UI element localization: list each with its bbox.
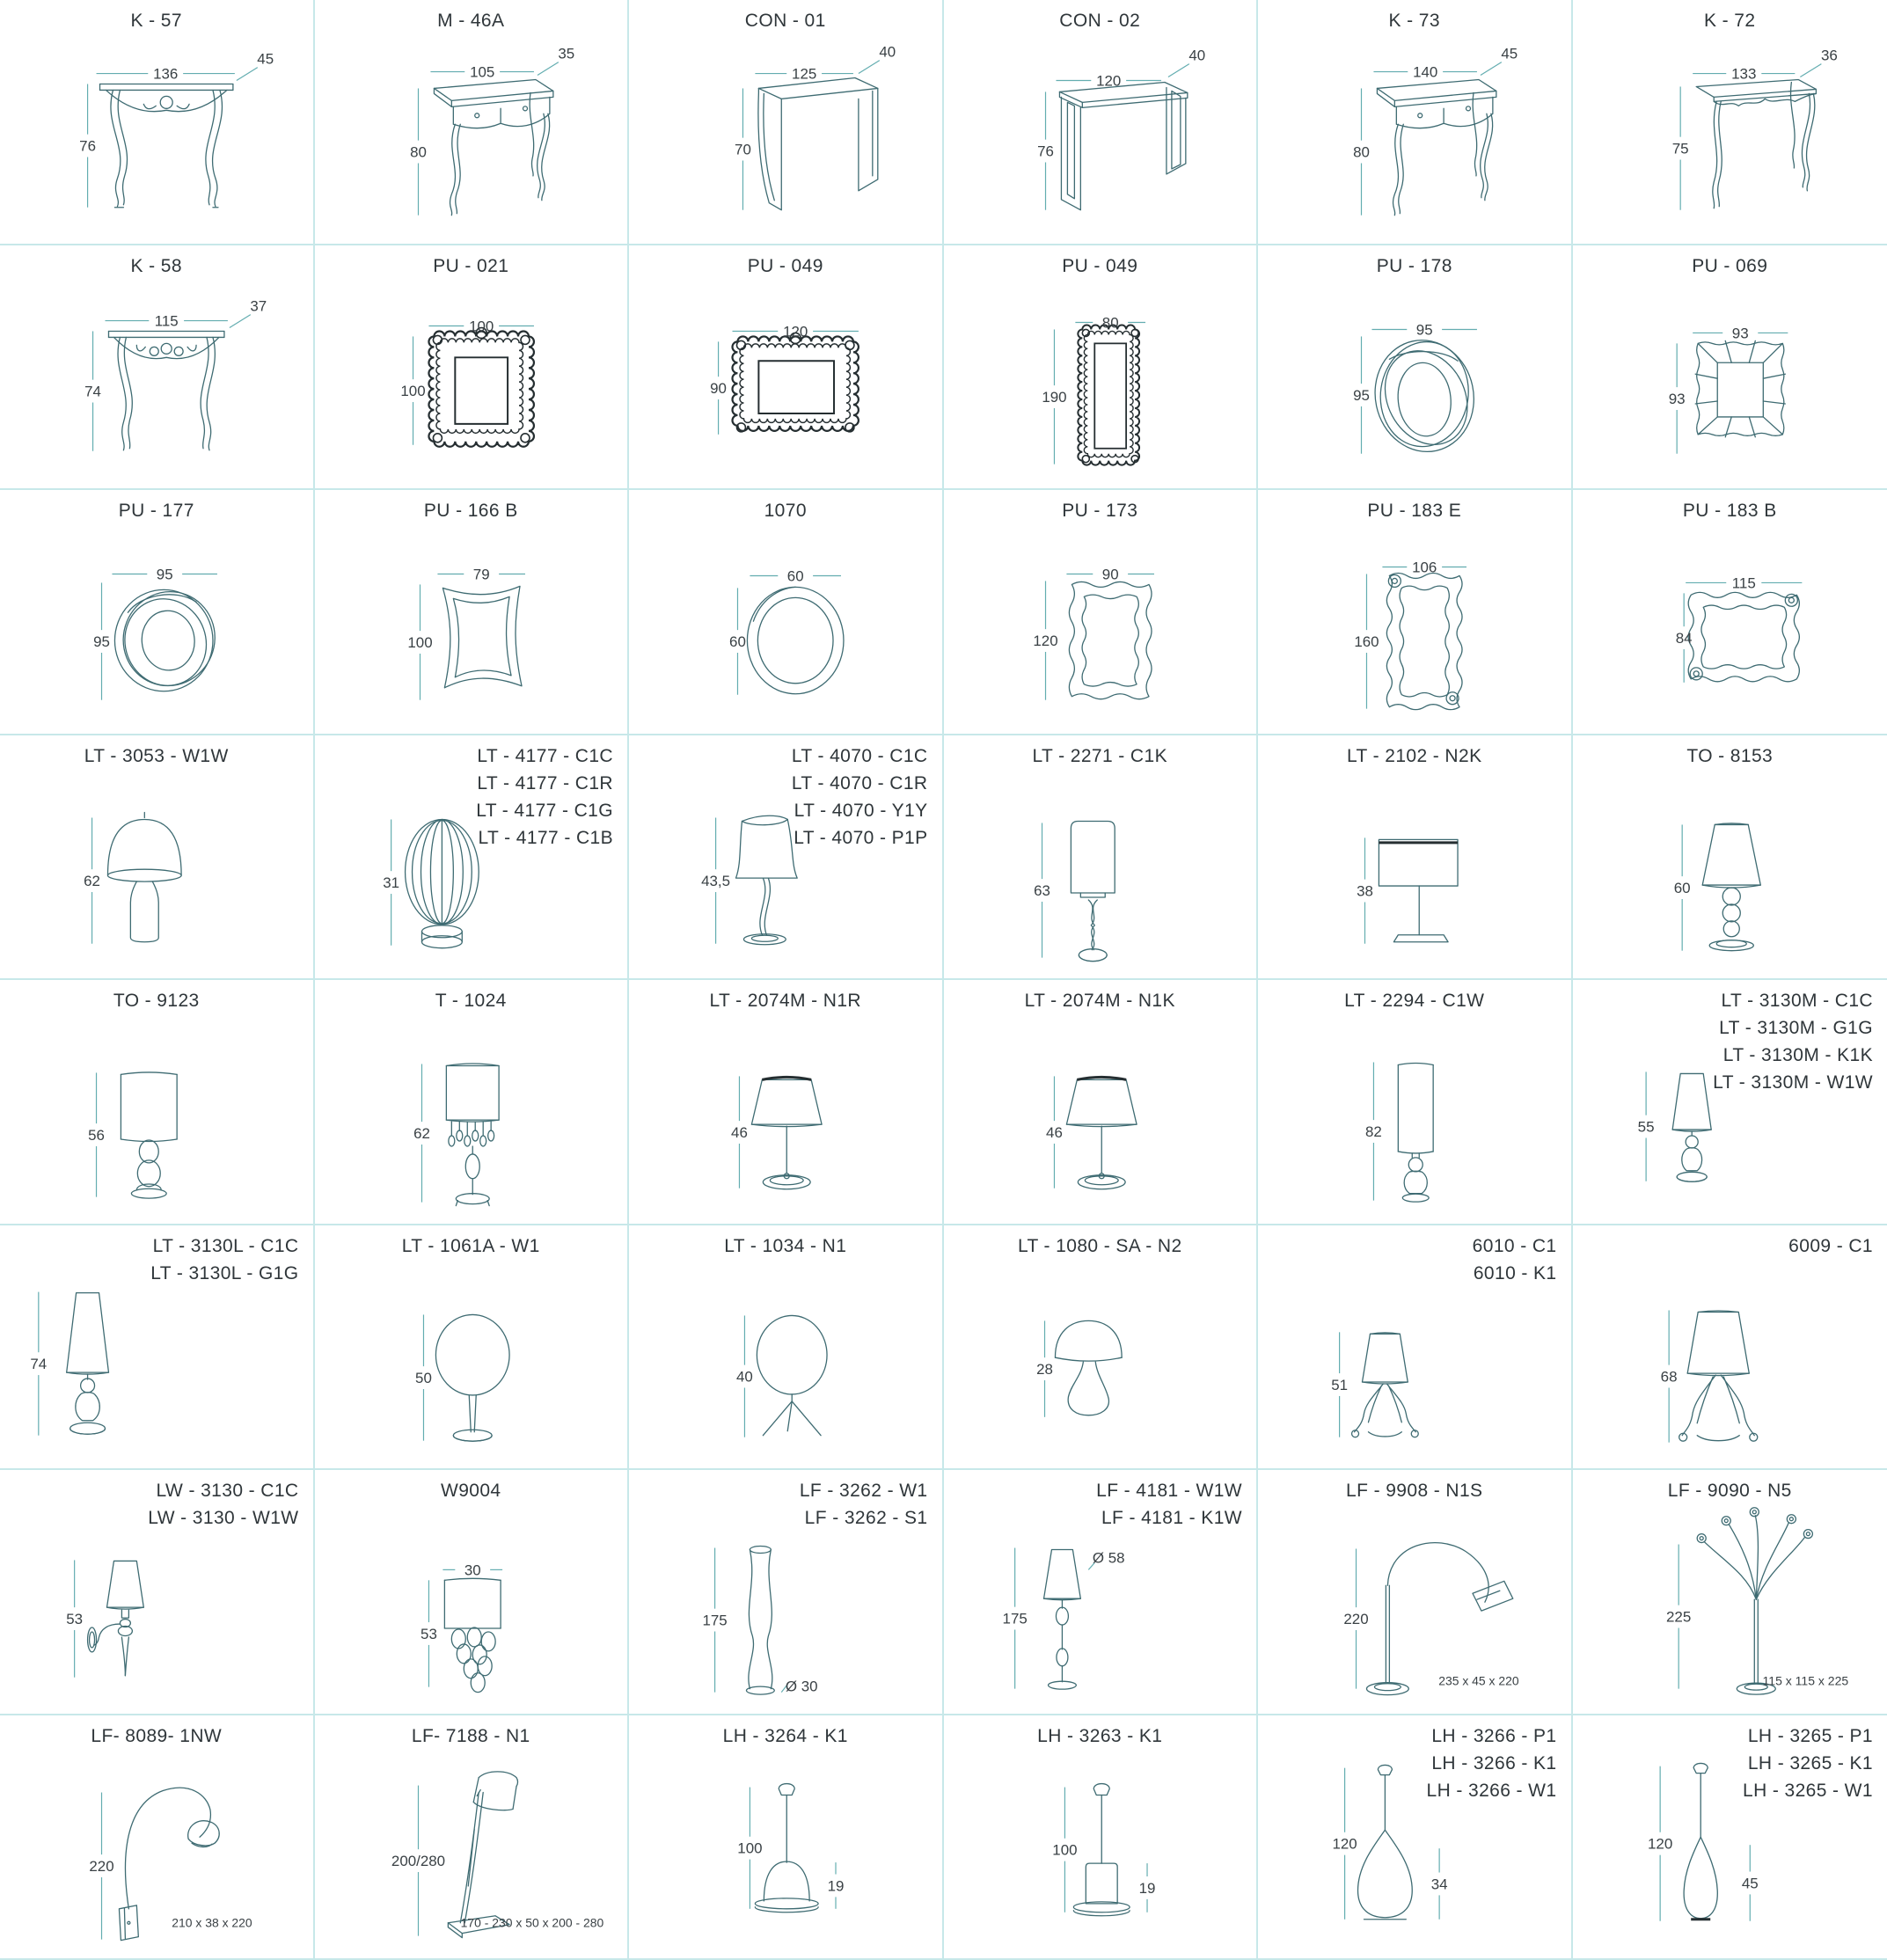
product-cell: LT - 2294 - C1W82	[1258, 980, 1573, 1225]
svg-text:115: 115	[155, 312, 179, 329]
product-codes: T - 1024	[315, 987, 628, 1014]
product-drawing: 225115 x 115 x 225	[1573, 1470, 1887, 1714]
svg-text:93: 93	[1731, 325, 1748, 341]
product-codes: LT - 2074M - N1K	[944, 987, 1257, 1014]
svg-text:75: 75	[1671, 141, 1688, 157]
svg-text:19: 19	[828, 1877, 845, 1894]
product-codes: K - 72	[1573, 7, 1887, 34]
product-codes: K - 73	[1258, 7, 1571, 34]
svg-text:106: 106	[1412, 559, 1437, 576]
product-code: LW - 3130 - C1C	[148, 1477, 298, 1504]
product-drawing: 9595	[0, 490, 313, 734]
svg-text:60: 60	[1673, 880, 1690, 896]
product-codes: LT - 2294 - C1W	[1258, 987, 1571, 1014]
svg-text:45: 45	[1501, 46, 1518, 62]
product-codes: PU - 178	[1258, 252, 1571, 280]
svg-text:53: 53	[66, 1611, 83, 1627]
product-code: PU - 178	[1258, 252, 1571, 280]
product-codes: LT - 1080 - SA - N2	[944, 1232, 1257, 1260]
product-cell: LT - 1034 - N140	[629, 1225, 944, 1471]
product-drawing: 220235 x 45 x 220	[1258, 1470, 1571, 1714]
svg-text:62: 62	[84, 873, 100, 889]
product-cell: LH - 3264 - K110019	[629, 1715, 944, 1960]
product-code: PU - 069	[1573, 252, 1887, 280]
svg-text:90: 90	[710, 380, 727, 397]
product-drawing: 9595	[1258, 245, 1571, 489]
product-drawing: 106160	[1258, 490, 1571, 734]
svg-text:60: 60	[729, 633, 746, 650]
svg-text:115 x 115 x 225: 115 x 115 x 225	[1762, 1674, 1848, 1688]
svg-text:40: 40	[736, 1368, 753, 1385]
product-drawing: 46	[629, 980, 942, 1224]
product-code: T - 1024	[315, 987, 628, 1014]
product-cell: LT - 3053 - W1W62	[0, 735, 315, 981]
svg-text:120: 120	[1332, 1835, 1357, 1852]
svg-text:38: 38	[1357, 882, 1373, 899]
svg-text:36: 36	[1820, 48, 1837, 64]
svg-text:74: 74	[30, 1356, 47, 1372]
product-code: LH - 3266 - K1	[1427, 1750, 1557, 1777]
product-code: LT - 4070 - Y1Y	[792, 797, 928, 824]
svg-text:95: 95	[157, 566, 173, 582]
product-cell: LT - 3130L - C1CLT - 3130L - G1G74	[0, 1225, 315, 1471]
product-cell: LH - 3266 - P1LH - 3266 - K1LH - 3266 - …	[1258, 1715, 1573, 1960]
product-code: LH - 3265 - W1	[1743, 1777, 1873, 1804]
product-code: LT - 4070 - C1R	[792, 770, 928, 797]
product-cell: 10706060	[629, 490, 944, 735]
product-codes: LT - 2074M - N1R	[629, 987, 942, 1014]
product-code: LF- 7188 - N1	[315, 1722, 628, 1750]
product-drawing: 200/280170 - 230 x 50 x 200 - 280	[315, 1715, 628, 1959]
product-code: LF - 4181 - W1W	[1096, 1477, 1242, 1504]
product-drawing: 46	[944, 980, 1257, 1224]
product-drawing: 50	[315, 1225, 628, 1469]
product-code: LT - 3053 - W1W	[0, 742, 313, 770]
product-code: LF- 8089- 1NW	[0, 1722, 313, 1750]
svg-text:115: 115	[1731, 574, 1755, 591]
svg-text:80: 80	[1101, 314, 1118, 331]
product-drawing: 10019	[629, 1715, 942, 1959]
product-codes: 6010 - C16010 - K1	[1473, 1232, 1557, 1287]
product-drawing: 82	[1258, 980, 1571, 1224]
product-cell: PU - 183 E106160	[1258, 490, 1573, 735]
product-drawing: 9393	[1573, 245, 1887, 489]
product-cell: PU - 1779595	[0, 490, 315, 735]
product-code: TO - 8153	[1573, 742, 1887, 770]
svg-text:84: 84	[1675, 630, 1692, 647]
svg-text:55: 55	[1637, 1119, 1654, 1136]
svg-text:79: 79	[472, 566, 489, 582]
product-drawing: 100100	[315, 245, 628, 489]
product-drawing: 1364576	[0, 0, 313, 244]
product-code: CON - 02	[944, 7, 1257, 34]
svg-text:170 - 230 x 50 x 200 - 280: 170 - 230 x 50 x 200 - 280	[460, 1915, 603, 1929]
product-cell: LT - 1061A - W150	[315, 1225, 630, 1471]
product-code: LW - 3130 - W1W	[148, 1504, 298, 1532]
svg-text:100: 100	[400, 383, 425, 399]
product-code: LT - 4177 - C1C	[476, 742, 613, 770]
product-codes: PU - 166 B	[315, 497, 628, 524]
product-cell: PU - 04912090	[629, 245, 944, 491]
product-codes: PU - 021	[315, 252, 628, 280]
svg-text:51: 51	[1331, 1376, 1348, 1393]
product-cell: LW - 3130 - C1CLW - 3130 - W1W53	[0, 1470, 315, 1715]
product-cell: PU - 183 B11584	[1573, 490, 1887, 735]
product-codes: PU - 183 E	[1258, 497, 1571, 524]
product-cell: T - 102462	[315, 980, 630, 1225]
product-code: LT - 3130M - W1W	[1713, 1069, 1873, 1096]
svg-text:46: 46	[1046, 1124, 1063, 1141]
svg-text:30: 30	[464, 1561, 480, 1578]
product-codes: K - 58	[0, 252, 313, 280]
svg-text:56: 56	[88, 1127, 105, 1144]
product-drawing: 60	[1573, 735, 1887, 979]
product-cell: K - 581153774	[0, 245, 315, 491]
product-code: LT - 1061A - W1	[315, 1232, 628, 1260]
product-cell: LF - 3262 - W1LF - 3262 - S1175Ø 30	[629, 1470, 944, 1715]
product-code: PU - 049	[944, 252, 1257, 280]
svg-text:210 x 38 x 220: 210 x 38 x 220	[172, 1915, 252, 1929]
svg-text:45: 45	[1741, 1875, 1758, 1891]
product-code: LT - 2074M - N1R	[629, 987, 942, 1014]
product-codes: LT - 3130M - C1CLT - 3130M - G1GLT - 313…	[1713, 987, 1873, 1096]
product-codes: PU - 049	[629, 252, 942, 280]
product-code: LT - 1034 - N1	[629, 1232, 942, 1260]
svg-text:95: 95	[1353, 387, 1370, 404]
product-code: LT - 4177 - C1G	[476, 797, 613, 824]
product-cell: LH - 3265 - P1LH - 3265 - K1LH - 3265 - …	[1573, 1715, 1887, 1960]
product-codes: LT - 1061A - W1	[315, 1232, 628, 1260]
product-code: TO - 9123	[0, 987, 313, 1014]
svg-text:100: 100	[737, 1839, 762, 1856]
product-code: LT - 3130L - C1C	[150, 1232, 298, 1260]
svg-text:95: 95	[93, 633, 110, 650]
product-cell: 6009 - C168	[1573, 1225, 1887, 1471]
product-drawing: 63	[944, 735, 1257, 979]
product-codes: PU - 173	[944, 497, 1257, 524]
product-cell: PU - 17390120	[944, 490, 1259, 735]
svg-text:120: 120	[1033, 633, 1057, 649]
product-drawing: 80190	[944, 245, 1257, 489]
svg-text:28: 28	[1036, 1361, 1053, 1378]
product-codes: TO - 8153	[1573, 742, 1887, 770]
product-code: PU - 166 B	[315, 497, 628, 524]
product-cell: PU - 04980190	[944, 245, 1259, 491]
product-codes: LT - 4177 - C1CLT - 4177 - C1RLT - 4177 …	[476, 742, 613, 852]
product-drawing: 79100	[315, 490, 628, 734]
svg-text:43,5: 43,5	[701, 873, 730, 889]
product-code: K - 57	[0, 7, 313, 34]
product-code: K - 72	[1573, 7, 1887, 34]
svg-text:34: 34	[1431, 1876, 1448, 1892]
product-cell: LF - 4181 - W1WLF - 4181 - K1W175Ø 58	[944, 1470, 1259, 1715]
product-drawing: 12090	[629, 245, 942, 489]
product-codes: LT - 1034 - N1	[629, 1232, 942, 1260]
product-drawing: 1153774	[0, 245, 313, 489]
product-codes: LF - 4181 - W1WLF - 4181 - K1W	[1096, 1477, 1242, 1532]
product-codes: PU - 183 B	[1573, 497, 1887, 524]
product-code: LT - 2074M - N1K	[944, 987, 1257, 1014]
product-code: LT - 3130M - K1K	[1713, 1042, 1873, 1069]
product-cell: PU - 0699393	[1573, 245, 1887, 491]
product-code: 6010 - K1	[1473, 1260, 1557, 1287]
product-codes: CON - 01	[629, 7, 942, 34]
svg-text:136: 136	[153, 66, 178, 83]
product-code: LF - 9090 - N5	[1573, 1477, 1887, 1504]
svg-text:200/280: 200/280	[391, 1853, 444, 1869]
svg-text:74: 74	[84, 383, 101, 399]
product-cell: LF- 7188 - N1200/280170 - 230 x 50 x 200…	[315, 1715, 630, 1960]
product-codes: PU - 049	[944, 252, 1257, 280]
product-code: LH - 3266 - P1	[1427, 1722, 1557, 1750]
product-cell: PU - 021100100	[315, 245, 630, 491]
svg-text:100: 100	[1052, 1841, 1077, 1858]
svg-text:120: 120	[1096, 72, 1121, 89]
product-drawing: 38	[1258, 735, 1571, 979]
svg-text:220: 220	[1343, 1611, 1368, 1627]
product-code: LF - 3262 - W1	[800, 1477, 928, 1504]
product-cell: TO - 912356	[0, 980, 315, 1225]
product-code: CON - 01	[629, 7, 942, 34]
catalog-board: K - 571364576M - 46A1053580CON - 0112540…	[0, 0, 1887, 1960]
svg-text:31: 31	[383, 874, 399, 891]
product-drawing: 1404580	[1258, 0, 1571, 244]
product-codes: LH - 3264 - K1	[629, 1722, 942, 1750]
product-cell: K - 571364576	[0, 0, 315, 245]
svg-text:235 x 45 x 220: 235 x 45 x 220	[1438, 1674, 1519, 1688]
product-codes: W9004	[315, 1477, 628, 1504]
product-code: LT - 2271 - C1K	[944, 742, 1257, 770]
product-cell: K - 721333675	[1573, 0, 1887, 245]
product-cell: PU - 1789595	[1258, 245, 1573, 491]
product-cell: LT - 4070 - C1CLT - 4070 - C1RLT - 4070 …	[629, 735, 944, 981]
product-codes: K - 57	[0, 7, 313, 34]
product-code: LT - 3130M - C1C	[1713, 987, 1873, 1014]
product-cell: LH - 3263 - K110019	[944, 1715, 1259, 1960]
product-drawing: 62	[315, 980, 628, 1224]
svg-text:190: 190	[1042, 389, 1066, 406]
product-codes: CON - 02	[944, 7, 1257, 34]
product-cell: K - 731404580	[1258, 0, 1573, 245]
product-cell: LF - 9908 - N1S220235 x 45 x 220	[1258, 1470, 1573, 1715]
product-codes: 6009 - C1	[1788, 1232, 1873, 1260]
svg-text:125: 125	[792, 66, 816, 83]
product-code: PU - 177	[0, 497, 313, 524]
product-drawing: 90120	[944, 490, 1257, 734]
product-cell: LT - 2102 - N2K38	[1258, 735, 1573, 981]
product-cell: PU - 166 B79100	[315, 490, 630, 735]
product-code: LF - 9908 - N1S	[1258, 1477, 1571, 1504]
svg-text:105: 105	[470, 64, 494, 81]
svg-text:35: 35	[558, 46, 574, 62]
svg-text:68: 68	[1660, 1368, 1677, 1385]
product-code: LT - 3130L - G1G	[150, 1260, 298, 1287]
svg-text:19: 19	[1138, 1879, 1155, 1896]
product-code: LH - 3265 - P1	[1743, 1722, 1873, 1750]
svg-text:160: 160	[1354, 633, 1379, 650]
product-code: LT - 3130M - G1G	[1713, 1014, 1873, 1042]
product-drawing: 6060	[629, 490, 942, 734]
product-codes: LF - 9090 - N5	[1573, 1477, 1887, 1504]
product-codes: LF - 9908 - N1S	[1258, 1477, 1571, 1504]
product-code: LH - 3264 - K1	[629, 1722, 942, 1750]
svg-text:175: 175	[702, 1613, 727, 1629]
product-code: PU - 183 B	[1573, 497, 1887, 524]
product-code: PU - 021	[315, 252, 628, 280]
svg-text:63: 63	[1034, 882, 1050, 899]
product-code: M - 46A	[315, 7, 628, 34]
svg-text:Ø 58: Ø 58	[1092, 1549, 1124, 1566]
product-code: LF - 3262 - S1	[800, 1504, 928, 1532]
product-drawing: 56	[0, 980, 313, 1224]
product-codes: LH - 3266 - P1LH - 3266 - K1LH - 3266 - …	[1427, 1722, 1557, 1804]
product-codes: LT - 2102 - N2K	[1258, 742, 1571, 770]
product-drawing: 11584	[1573, 490, 1887, 734]
svg-text:60: 60	[787, 567, 804, 584]
svg-text:100: 100	[469, 318, 494, 334]
product-code: LH - 3265 - K1	[1743, 1750, 1873, 1777]
product-code: LF - 4181 - K1W	[1096, 1504, 1242, 1532]
svg-text:80: 80	[410, 144, 427, 161]
product-code: 6010 - C1	[1473, 1232, 1557, 1260]
product-codes: LT - 2271 - C1K	[944, 742, 1257, 770]
svg-text:95: 95	[1416, 321, 1433, 338]
product-code: LT - 4177 - C1B	[476, 824, 613, 852]
product-drawing: 1333675	[1573, 0, 1887, 244]
product-drawing: 1053580	[315, 0, 628, 244]
product-drawing: 1254070	[629, 0, 942, 244]
svg-text:76: 76	[1037, 143, 1054, 160]
product-drawing: 10019	[944, 1715, 1257, 1959]
product-code: 6009 - C1	[1788, 1232, 1873, 1260]
svg-text:140: 140	[1413, 64, 1437, 81]
svg-text:80: 80	[1353, 144, 1370, 161]
product-drawing: 40	[629, 1225, 942, 1469]
product-drawing: 3053	[315, 1470, 628, 1714]
product-cell: M - 46A1053580	[315, 0, 630, 245]
product-code: PU - 183 E	[1258, 497, 1571, 524]
product-cell: CON - 011254070	[629, 0, 944, 245]
product-codes: PU - 177	[0, 497, 313, 524]
svg-text:93: 93	[1668, 391, 1685, 407]
product-code: 1070	[629, 497, 942, 524]
product-cell: LT - 1080 - SA - N228	[944, 1225, 1259, 1471]
product-drawing: 68	[1573, 1225, 1887, 1469]
product-code: W9004	[315, 1477, 628, 1504]
product-code: LT - 4070 - P1P	[792, 824, 928, 852]
svg-text:133: 133	[1731, 66, 1756, 83]
svg-text:53: 53	[421, 1626, 437, 1642]
product-cell: CON - 021204076	[944, 0, 1259, 245]
product-codes: 1070	[629, 497, 942, 524]
svg-text:37: 37	[250, 297, 267, 314]
product-cell: LT - 2271 - C1K63	[944, 735, 1259, 981]
product-code: K - 58	[0, 252, 313, 280]
product-cell: 6010 - C16010 - K151	[1258, 1225, 1573, 1471]
product-cell: LT - 4177 - C1CLT - 4177 - C1RLT - 4177 …	[315, 735, 630, 981]
product-code: LH - 3263 - K1	[944, 1722, 1257, 1750]
svg-text:Ø 30: Ø 30	[786, 1678, 818, 1695]
product-drawing: 1204076	[944, 0, 1257, 244]
svg-text:50: 50	[415, 1370, 432, 1386]
product-code: LT - 2294 - C1W	[1258, 987, 1571, 1014]
product-cell: LF- 8089- 1NW220210 x 38 x 220	[0, 1715, 315, 1960]
svg-text:175: 175	[1002, 1611, 1027, 1627]
product-codes: TO - 9123	[0, 987, 313, 1014]
product-drawing: 62	[0, 735, 313, 979]
product-cell: LT - 2074M - N1K46	[944, 980, 1259, 1225]
svg-text:90: 90	[1101, 566, 1118, 582]
svg-text:120: 120	[1647, 1835, 1671, 1852]
svg-text:100: 100	[407, 634, 432, 651]
product-codes: LW - 3130 - C1CLW - 3130 - W1W	[148, 1477, 298, 1532]
svg-text:225: 225	[1665, 1609, 1690, 1626]
svg-text:120: 120	[783, 323, 808, 340]
svg-text:76: 76	[79, 138, 96, 155]
product-codes: LF- 8089- 1NW	[0, 1722, 313, 1750]
product-cell: LT - 2074M - N1R46	[629, 980, 944, 1225]
product-cell: LT - 3130M - C1CLT - 3130M - G1GLT - 313…	[1573, 980, 1887, 1225]
product-cell: W90043053	[315, 1470, 630, 1715]
product-code: LT - 1080 - SA - N2	[944, 1232, 1257, 1260]
product-codes: LH - 3263 - K1	[944, 1722, 1257, 1750]
product-code: LT - 4177 - C1R	[476, 770, 613, 797]
product-cell: TO - 815360	[1573, 735, 1887, 981]
product-codes: LH - 3265 - P1LH - 3265 - K1LH - 3265 - …	[1743, 1722, 1873, 1804]
svg-text:40: 40	[879, 44, 896, 61]
svg-text:220: 220	[89, 1858, 113, 1875]
svg-text:82: 82	[1365, 1123, 1382, 1140]
product-drawing: 220210 x 38 x 220	[0, 1715, 313, 1959]
product-cell: LF - 9090 - N5225115 x 115 x 225	[1573, 1470, 1887, 1715]
product-drawing: 28	[944, 1225, 1257, 1469]
svg-text:40: 40	[1189, 48, 1205, 64]
product-codes: PU - 069	[1573, 252, 1887, 280]
product-code: PU - 173	[944, 497, 1257, 524]
product-code: LT - 2102 - N2K	[1258, 742, 1571, 770]
product-code: LH - 3266 - W1	[1427, 1777, 1557, 1804]
product-codes: LF - 3262 - W1LF - 3262 - S1	[800, 1477, 928, 1532]
svg-text:45: 45	[257, 51, 274, 68]
product-code: PU - 049	[629, 252, 942, 280]
product-code: LT - 4070 - C1C	[792, 742, 928, 770]
svg-text:70: 70	[735, 142, 751, 158]
svg-text:46: 46	[731, 1124, 748, 1141]
product-codes: LT - 4070 - C1CLT - 4070 - C1RLT - 4070 …	[792, 742, 928, 852]
product-codes: LF- 7188 - N1	[315, 1722, 628, 1750]
product-codes: M - 46A	[315, 7, 628, 34]
product-codes: LT - 3130L - C1CLT - 3130L - G1G	[150, 1232, 298, 1287]
svg-text:62: 62	[413, 1125, 430, 1142]
product-code: K - 73	[1258, 7, 1571, 34]
product-codes: LT - 3053 - W1W	[0, 742, 313, 770]
